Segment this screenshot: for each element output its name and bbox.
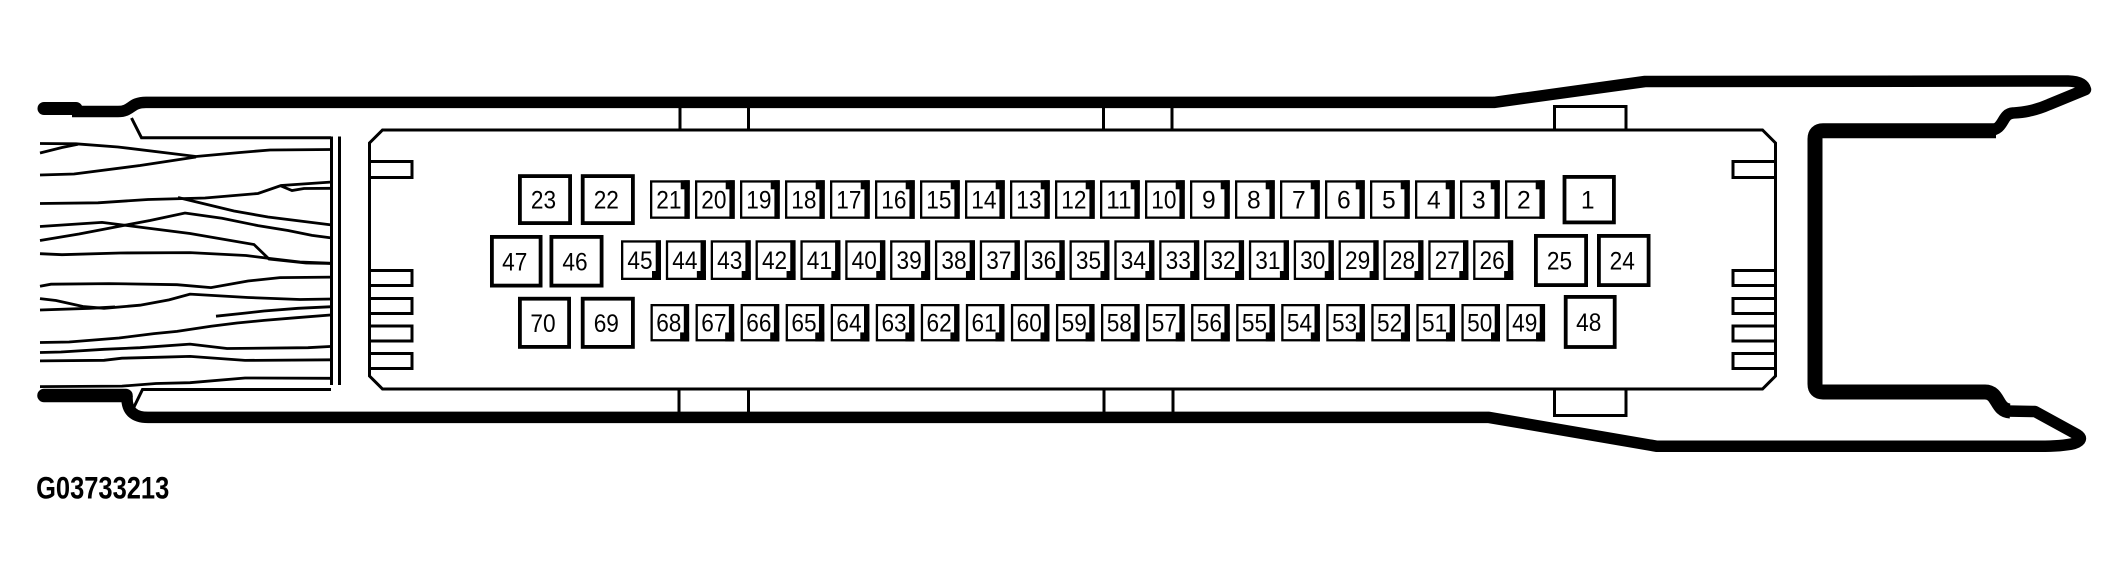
svg-text:60: 60 (1017, 311, 1042, 338)
svg-text:12: 12 (1061, 188, 1086, 215)
svg-text:18: 18 (791, 188, 816, 215)
svg-text:30: 30 (1300, 248, 1325, 275)
svg-text:41: 41 (807, 248, 832, 275)
svg-text:1: 1 (1581, 188, 1595, 215)
svg-text:48: 48 (1576, 310, 1601, 337)
svg-text:22: 22 (594, 188, 619, 215)
svg-text:42: 42 (762, 248, 787, 275)
svg-text:43: 43 (717, 248, 742, 275)
svg-text:50: 50 (1467, 311, 1492, 338)
svg-text:29: 29 (1345, 248, 1370, 275)
svg-text:19: 19 (746, 188, 771, 215)
svg-text:59: 59 (1062, 311, 1087, 338)
svg-text:55: 55 (1242, 311, 1267, 338)
svg-text:46: 46 (562, 249, 587, 276)
svg-text:6: 6 (1337, 188, 1351, 215)
svg-text:38: 38 (941, 248, 966, 275)
svg-text:45: 45 (627, 248, 652, 275)
svg-text:34: 34 (1121, 248, 1146, 275)
svg-text:25: 25 (1547, 249, 1572, 276)
svg-text:3: 3 (1472, 188, 1486, 215)
svg-text:63: 63 (881, 311, 906, 338)
svg-text:23: 23 (531, 188, 556, 215)
svg-text:44: 44 (672, 248, 697, 275)
svg-text:54: 54 (1287, 311, 1312, 338)
svg-text:33: 33 (1166, 248, 1191, 275)
svg-text:40: 40 (852, 248, 877, 275)
svg-text:69: 69 (594, 311, 619, 338)
svg-text:13: 13 (1016, 188, 1041, 215)
svg-text:5: 5 (1382, 188, 1396, 215)
svg-text:52: 52 (1377, 311, 1402, 338)
svg-text:37: 37 (986, 248, 1011, 275)
svg-text:47: 47 (502, 249, 527, 276)
svg-text:58: 58 (1107, 311, 1132, 338)
svg-text:62: 62 (927, 311, 952, 338)
svg-text:28: 28 (1390, 248, 1415, 275)
svg-text:7: 7 (1292, 188, 1306, 215)
svg-text:64: 64 (836, 311, 861, 338)
svg-text:70: 70 (530, 311, 555, 338)
svg-text:21: 21 (656, 188, 681, 215)
svg-text:32: 32 (1210, 248, 1235, 275)
svg-text:66: 66 (746, 311, 771, 338)
svg-text:4: 4 (1427, 188, 1441, 215)
svg-text:65: 65 (791, 311, 816, 338)
svg-text:35: 35 (1076, 248, 1101, 275)
svg-text:67: 67 (701, 311, 726, 338)
svg-text:15: 15 (926, 188, 951, 215)
svg-text:10: 10 (1151, 188, 1176, 215)
svg-text:61: 61 (972, 311, 997, 338)
svg-text:G03733213: G03733213 (36, 471, 169, 506)
svg-text:39: 39 (897, 248, 922, 275)
svg-text:27: 27 (1435, 248, 1460, 275)
svg-text:31: 31 (1255, 248, 1280, 275)
svg-text:11: 11 (1106, 188, 1131, 215)
svg-text:14: 14 (971, 188, 996, 215)
svg-text:17: 17 (836, 188, 861, 215)
svg-text:2: 2 (1517, 188, 1531, 215)
svg-text:8: 8 (1247, 188, 1261, 215)
svg-text:68: 68 (656, 311, 681, 338)
svg-text:9: 9 (1202, 188, 1216, 215)
svg-text:53: 53 (1332, 311, 1357, 338)
svg-text:24: 24 (1610, 249, 1635, 276)
svg-text:56: 56 (1197, 311, 1222, 338)
svg-text:26: 26 (1480, 248, 1505, 275)
svg-text:51: 51 (1422, 311, 1447, 338)
svg-text:20: 20 (701, 188, 726, 215)
svg-text:49: 49 (1512, 311, 1537, 338)
svg-text:36: 36 (1031, 248, 1056, 275)
svg-text:16: 16 (881, 188, 906, 215)
svg-text:57: 57 (1152, 311, 1177, 338)
